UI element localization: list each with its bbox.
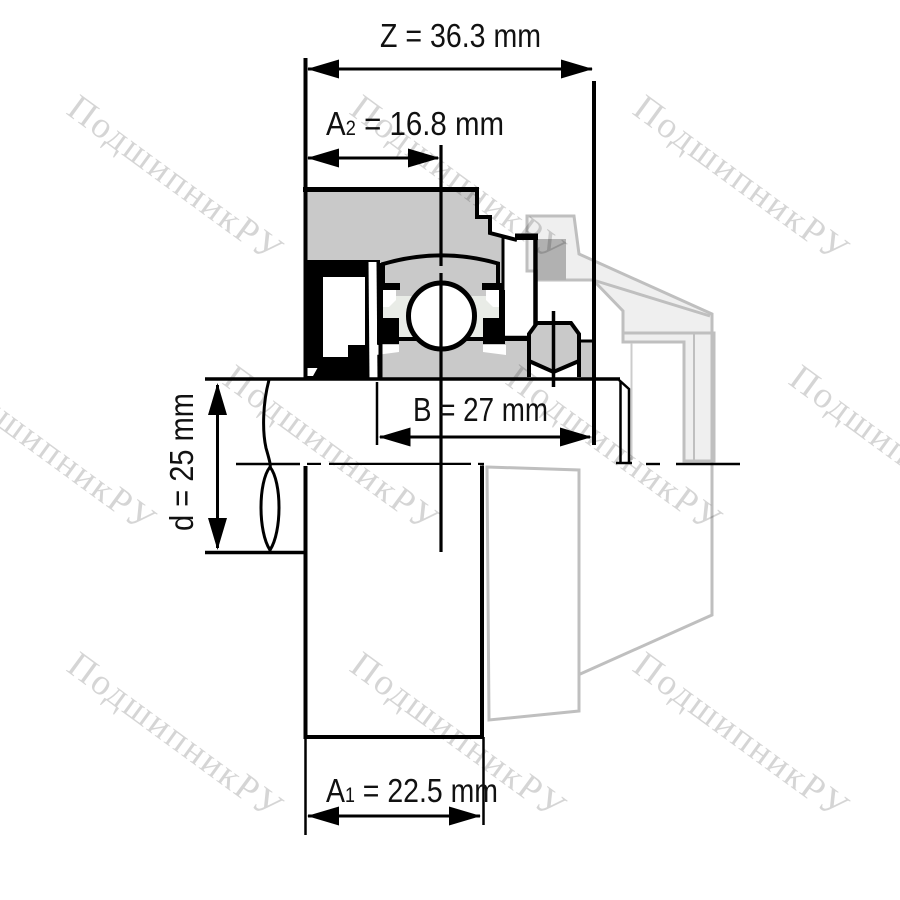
svg-text:Z = 36.3 mm: Z = 36.3 mm	[380, 18, 541, 55]
svg-text:d = 25 mm: d = 25 mm	[164, 393, 201, 531]
